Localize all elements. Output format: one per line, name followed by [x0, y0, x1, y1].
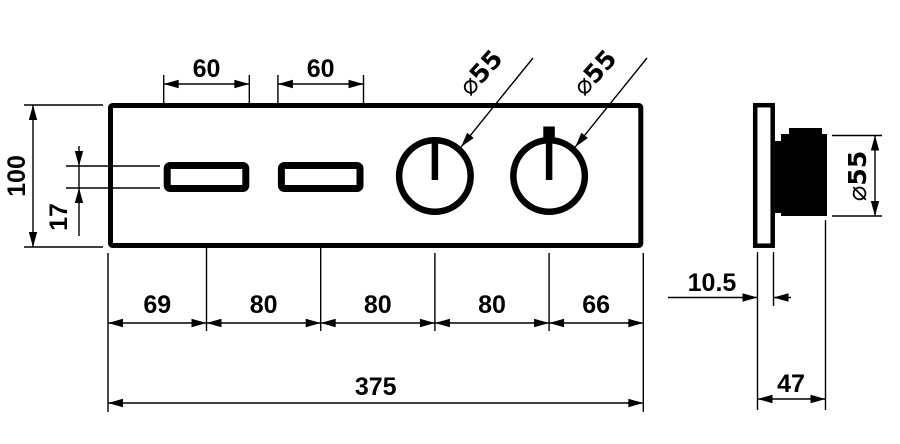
- dim-label-slot2-width: 60: [307, 55, 335, 83]
- dim-label-chain-1: 69: [143, 291, 171, 319]
- side-view: ⌀55 10.5 47: [668, 105, 882, 410]
- arrowhead: [75, 188, 83, 203]
- dim-label-plate-thickness: 10.5: [688, 269, 737, 297]
- arrowhead: [349, 80, 364, 88]
- diameter-value: 55: [843, 151, 872, 186]
- dim-label-chain-2: 80: [250, 291, 278, 319]
- arrowhead: [534, 319, 549, 327]
- dim-label-panel-width: 375: [355, 373, 397, 401]
- dim-slot1-width: 60: [164, 55, 250, 88]
- arrowhead: [29, 232, 37, 247]
- dim-label-slot-height: 17: [45, 203, 73, 231]
- dim-slot2-width: 60: [278, 55, 364, 88]
- arrowhead: [207, 319, 222, 327]
- dim-label-slot1-width: 60: [193, 55, 221, 83]
- arrowhead: [628, 319, 643, 327]
- dim-label-knob1-diameter: ⌀55: [453, 44, 509, 102]
- dim-label-knob-diameter-side: ⌀55: [843, 151, 873, 201]
- arrowhead: [549, 319, 564, 327]
- dimension-drawing: 60 60 100 17: [0, 0, 900, 444]
- arrowhead: [743, 293, 758, 301]
- dim-total-depth: 47: [758, 220, 826, 410]
- dim-label-knob2-diameter: ⌀55: [567, 44, 623, 102]
- arrowhead: [321, 319, 336, 327]
- arrowhead: [871, 136, 879, 151]
- slot-1: [167, 166, 246, 189]
- dim-label-chain-4: 80: [478, 291, 506, 319]
- arrowhead: [306, 319, 321, 327]
- dim-label-chain-3: 80: [364, 291, 392, 319]
- arrowhead: [75, 151, 83, 166]
- dim-label-panel-height: 100: [3, 155, 31, 197]
- arrowhead: [420, 319, 435, 327]
- arrowhead: [108, 319, 123, 327]
- arrowhead: [29, 105, 37, 120]
- arrowhead: [871, 201, 879, 216]
- diameter-symbol: ⌀: [843, 186, 873, 202]
- dim-plate-thickness: 10.5: [668, 252, 791, 410]
- arrowhead: [108, 399, 123, 407]
- arrowhead: [774, 293, 789, 301]
- slot-2: [281, 166, 360, 189]
- dim-knob-diameter-side: ⌀55: [832, 136, 882, 217]
- knob-2-button-marker: [543, 127, 555, 139]
- technical-drawing-canvas: 60 60 100 17: [0, 0, 900, 444]
- plate-profile: [755, 105, 773, 246]
- arrowhead: [628, 399, 643, 407]
- arrowhead: [758, 395, 773, 403]
- arrowhead: [192, 319, 207, 327]
- knob-side-profile: [775, 128, 827, 216]
- front-view: 60 60 100 17: [3, 44, 647, 412]
- arrowhead: [234, 80, 249, 88]
- arrowhead: [164, 80, 179, 88]
- arrowhead: [811, 395, 826, 403]
- arrowhead: [278, 80, 293, 88]
- dim-panel-width: 375: [108, 373, 643, 407]
- arrowhead: [435, 319, 450, 327]
- dim-label-chain-5: 66: [582, 291, 610, 319]
- dim-label-total-depth: 47: [777, 370, 805, 398]
